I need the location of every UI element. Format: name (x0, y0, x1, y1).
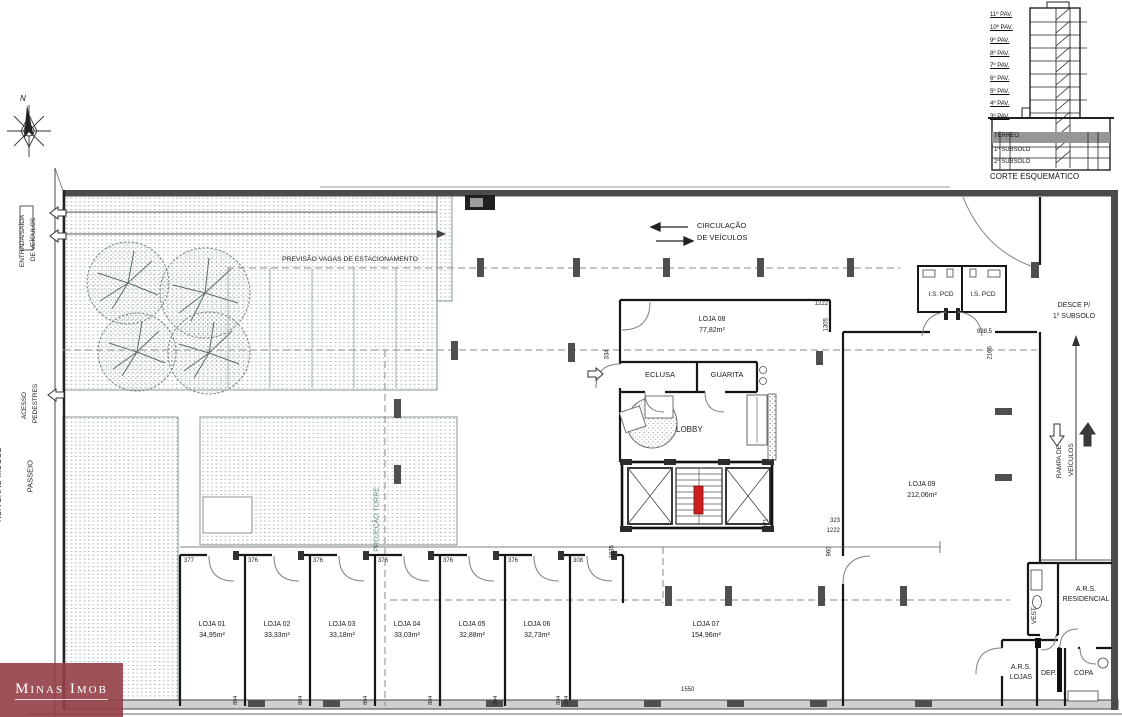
dim-2166: 2166 (988, 346, 996, 359)
dim-804-4: 804 (428, 696, 435, 705)
dim-1305: 1305 (824, 318, 832, 331)
vehicle-entrance-label-line1: ENTRADA/SAÍDA (19, 215, 27, 267)
fire-stair-marker (694, 486, 703, 514)
dim-308: 308 (573, 558, 583, 566)
compass-rose (7, 105, 51, 157)
dim-804-1: 804 (233, 696, 240, 705)
section-floor-3: 3º PAV. (990, 114, 1009, 120)
dim-376-2: 376 (313, 558, 323, 566)
dim-1222-top: 1222 (800, 301, 828, 309)
dim-1835: 1835 (610, 545, 618, 558)
section-floor-4: 4º PAV. (990, 101, 1009, 107)
ramp-down-label-line1: DESCE P/ (1040, 302, 1108, 311)
ramp-up-arrow-icon (1080, 423, 1095, 446)
dim-1550: 1550 (681, 687, 694, 695)
compass-north-label: N (20, 94, 26, 103)
tower-projection-label: PROJEÇÃO TORRE (373, 487, 382, 552)
room-label-loja-03: LOJA 0333,18m² (310, 620, 374, 641)
section-floor-sub1: 1º SUBSOLO (994, 147, 1030, 153)
street-name-label: RUA GRÃO MOGOL (0, 448, 4, 522)
dim-960: 960 (827, 546, 835, 556)
vehicle-entrance-label-line2: DE VEÍCULOS (30, 217, 38, 261)
dim-804-3: 804 (363, 696, 370, 705)
ars-residencial-label-line1: A.R.S. (1056, 586, 1116, 595)
eclusa-entry-arrow-icon (588, 368, 603, 380)
dim-971: 971 (764, 518, 772, 528)
ars-residencial-label-line2: RESIDENCIAL (1056, 596, 1116, 605)
door-posts (233, 551, 617, 560)
section-floor-9: 9º PAV. (990, 38, 1009, 44)
ramp-label-line1: RAMPA DE (1056, 445, 1064, 478)
dim-804-5: 804 (493, 696, 500, 705)
guarita-label: GUARITA (697, 370, 757, 379)
parking-area-label: PREVISÃO VAGAS DE ESTACIONAMENTO (282, 256, 418, 264)
accessible-bathroom-1-label: I.S. PCD (921, 291, 961, 299)
section-title: CORTE ESQUEMÁTICO (990, 172, 1079, 181)
dim-334: 334 (605, 349, 613, 359)
ramp-down-arrow-icon (1050, 424, 1064, 446)
sidewalk-label: PASSEIO (26, 460, 35, 492)
vest-label: VEST. (1031, 606, 1039, 624)
section-floor-11: 11º PAV. (990, 12, 1012, 18)
room-label-loja-05: LOJA 0532,88m² (440, 620, 504, 641)
ars-lojas-label-line1: A.R.S. (996, 664, 1046, 673)
agency-watermark: Minas Imob (0, 663, 123, 717)
dim-1222-mid: 1222 (815, 528, 840, 536)
dim-376-3: 376 (378, 558, 388, 566)
copa-label: COPA (1074, 670, 1093, 679)
section-floor-sub2: 2º SUBSOLO (994, 159, 1030, 165)
floor-plan-canvas: N ENTRADA/SAÍDA DE VEÍCULOS ACESSO PEDES… (0, 0, 1122, 717)
pedestrian-access-label-line2: PEDESTRES (32, 384, 40, 423)
dep-label: DEP. (1041, 670, 1056, 679)
vehicle-circulation-label-line2: DE VEÍCULOS (697, 233, 747, 242)
room-label-loja-02: LOJA 0233,33m² (245, 620, 309, 641)
dim-376-4: 376 (443, 558, 453, 566)
dim-377: 377 (184, 558, 194, 566)
room-label-loja-01: LOJA 0134,95m² (180, 620, 244, 641)
vehicle-ramp (1040, 335, 1112, 560)
ramp-label-line2: VEÍCULOS (1068, 443, 1076, 476)
section-floor-terreo: TÉRREO (994, 133, 1019, 139)
dim-376-1: 376 (248, 558, 258, 566)
pedestrian-access-label-line1: ACESSO (21, 392, 29, 419)
eclusa-label: ECLUSA (630, 370, 690, 379)
section-floor-5: 5º PAV. (990, 89, 1009, 95)
dim-376-5: 376 (508, 558, 518, 566)
accessible-bathroom-2-label: I.S. PCD (963, 291, 1003, 299)
dim-804-6: 804 (556, 696, 563, 705)
vertical-circulation-core (620, 459, 774, 532)
dim-323: 323 (818, 518, 840, 526)
dim-804-7: 804 (564, 696, 571, 705)
vehicle-circulation-label-line1: CIRCULAÇÃO (697, 221, 746, 230)
section-floor-10: 10º PAV. (990, 25, 1013, 31)
room-label-loja-09: LOJA 09212,06m² (890, 480, 954, 501)
pedestrian-access-arrow-icon (48, 389, 64, 401)
plan-linework (0, 0, 1122, 717)
ramp-down-label-line2: 1º SUBSOLO (1040, 313, 1108, 322)
room-label-loja-06: LOJA 0632,73m² (505, 620, 569, 641)
lobby-label: LOBBY (676, 425, 703, 435)
room-label-loja-08: LOJA 0877,82m² (680, 315, 744, 336)
section-floor-7: 7º PAV. (990, 63, 1009, 69)
section-floor-8: 8º PAV. (990, 51, 1009, 57)
dim-804-2: 804 (298, 696, 305, 705)
room-label-loja-04: LOJA 0433,03m² (375, 620, 439, 641)
room-label-loja-07: LOJA 07154,96m² (674, 620, 738, 641)
section-floor-6: 6º PAV. (990, 76, 1009, 82)
agency-watermark-text: Minas Imob (15, 681, 108, 700)
dim-938-5: 938,5 (977, 329, 992, 337)
ars-lojas-label-line2: LOJAS (996, 674, 1046, 683)
